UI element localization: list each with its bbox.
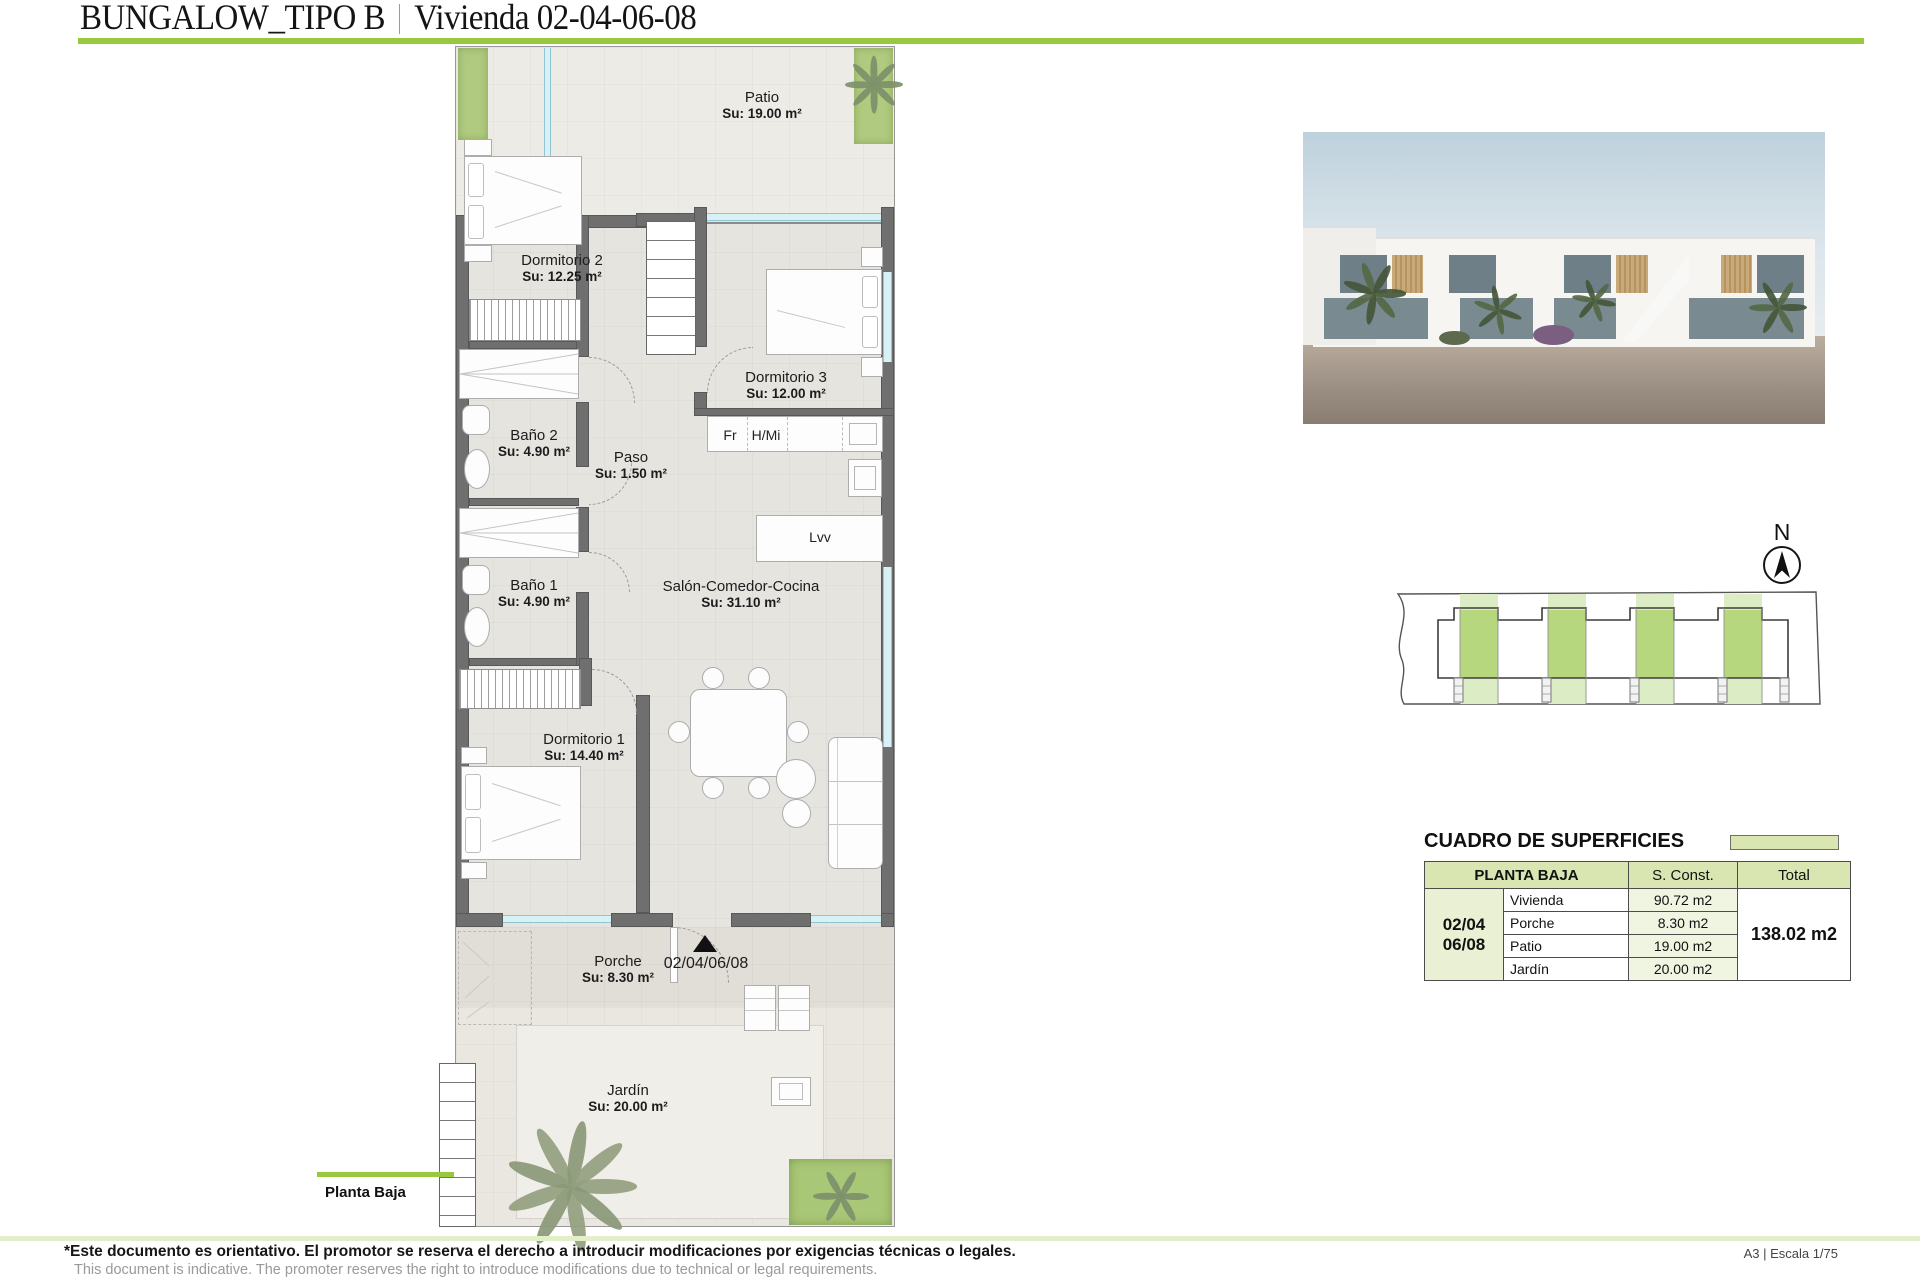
window-patio-dorm3 xyxy=(696,213,881,221)
sunbed xyxy=(778,985,810,1031)
building-render-photo xyxy=(1303,132,1825,424)
floor-label-accent xyxy=(317,1172,454,1177)
side-table xyxy=(782,799,811,828)
row-value: 90.72 m2 xyxy=(1629,889,1738,912)
kitchen-label-fridge: Fr xyxy=(723,427,736,443)
disclaimer-english: This document is indicative. The promote… xyxy=(74,1262,877,1278)
wall-segment xyxy=(469,658,579,666)
sink-bano1 xyxy=(464,607,490,647)
exterior-stairs xyxy=(439,1063,476,1227)
surfaces-accent-bar xyxy=(1730,835,1839,850)
sunbed xyxy=(744,985,776,1031)
window-sill xyxy=(696,222,881,224)
compass-icon xyxy=(1763,546,1801,584)
shower-bano1 xyxy=(459,508,579,558)
photo-palm-icon xyxy=(1475,284,1521,330)
floor-label: Planta Baja xyxy=(325,1184,406,1201)
wall-segment xyxy=(456,913,503,927)
photo-palm-icon xyxy=(1345,260,1403,318)
dining-table xyxy=(690,689,787,777)
surfaces-section-title: CUADRO DE SUPERFICIES xyxy=(1424,830,1684,853)
garden-palm-icon xyxy=(511,1127,631,1231)
kitchen-appliance xyxy=(848,459,882,497)
kitchen-label-oven-micro: H/Mi xyxy=(752,427,781,443)
garden-table xyxy=(771,1077,811,1106)
coffee-table xyxy=(776,759,816,799)
room-label-bano1: Baño 1 Su: 4.90 m² xyxy=(498,577,570,610)
nightstand xyxy=(861,247,883,267)
wall-segment xyxy=(576,402,589,467)
photo-bush xyxy=(1439,331,1470,346)
side-yard xyxy=(458,931,532,1025)
row-value: 19.00 m2 xyxy=(1629,935,1738,958)
chair xyxy=(748,667,770,689)
nightstand xyxy=(461,747,487,764)
small-palm-icon xyxy=(816,1169,866,1217)
patio-planter-left xyxy=(458,48,488,140)
unit-marker-label: 02/04/06/08 xyxy=(664,955,749,973)
wardrobe-dormitorio2 xyxy=(469,299,581,341)
bed-dormitorio1 xyxy=(461,766,581,860)
site-plan-diagram xyxy=(1388,586,1828,716)
wall-segment xyxy=(694,408,894,416)
wall-segment xyxy=(611,913,673,927)
row-value: 20.00 m2 xyxy=(1629,958,1738,981)
room-label-salon: Salón-Comedor-Cocina Su: 31.10 m² xyxy=(663,578,820,611)
room-label-dormitorio1: Dormitorio 1 Su: 14.40 m² xyxy=(543,731,625,764)
photo-wood-panel xyxy=(1721,255,1752,293)
entrance-marker-icon xyxy=(693,935,717,952)
nightstand xyxy=(464,245,492,262)
chair xyxy=(702,777,724,799)
room-label-dormitorio3: Dormitorio 3 Su: 12.00 m² xyxy=(745,369,827,402)
table-row: 02/04 06/08 Vivienda 90.72 m2 138.02 m2 xyxy=(1425,889,1851,912)
palm-tree-icon xyxy=(848,55,900,107)
toilet-bano1 xyxy=(462,565,490,595)
photo-wood-panel xyxy=(1616,255,1647,293)
disclaimer-spanish: *Este documento es orientativo. El promo… xyxy=(64,1243,1016,1261)
title-accent-rule xyxy=(78,38,1864,44)
window-salon-east xyxy=(883,567,892,747)
photo-palm-icon xyxy=(1574,278,1614,318)
room-label-bano2: Baño 2 Su: 4.90 m² xyxy=(498,427,570,460)
bed-dormitorio3 xyxy=(766,269,882,355)
room-label-jardin: Jardín Su: 20.00 m² xyxy=(588,1082,668,1115)
row-label: Jardín xyxy=(1504,958,1629,981)
footer-accent-band xyxy=(0,1236,1920,1241)
title-vivienda: Vivienda 02-04-06-08 xyxy=(414,0,696,38)
nightstand xyxy=(461,862,487,879)
unit-numbers-cell: 02/04 06/08 xyxy=(1425,889,1504,981)
wall-segment xyxy=(636,695,650,913)
window-dorm3-east xyxy=(883,272,892,362)
table-header-planta-baja: PLANTA BAJA xyxy=(1425,862,1629,889)
row-label: Porche xyxy=(1504,912,1629,935)
plan-sheet: BUNGALOW_TIPO B Vivienda 02-04-06-08 xyxy=(0,0,1920,1280)
photo-ground xyxy=(1303,336,1825,424)
row-label: Patio xyxy=(1504,935,1629,958)
wall-segment xyxy=(576,592,589,666)
north-arrow: N xyxy=(1762,520,1802,584)
surfaces-table: PLANTA BAJA S. Const. Total 02/04 06/08 … xyxy=(1424,861,1851,981)
title-type: BUNGALOW_TIPO B xyxy=(80,0,385,38)
chair xyxy=(668,721,690,743)
table-header-total: Total xyxy=(1738,862,1851,889)
wall-segment xyxy=(731,913,811,927)
sofa xyxy=(828,737,883,869)
shower-bano2 xyxy=(459,349,579,399)
north-label: N xyxy=(1762,520,1802,544)
room-label-porche: Porche Su: 8.30 m² xyxy=(582,953,654,986)
nightstand xyxy=(861,357,883,377)
window-salon-porch xyxy=(811,915,881,923)
wall-segment xyxy=(881,913,894,927)
kitchen-label-dishwasher: Lvv xyxy=(809,529,831,545)
wall-segment xyxy=(469,498,579,506)
toilet-bano2 xyxy=(462,405,490,435)
table-header-sconst: S. Const. xyxy=(1629,862,1738,889)
row-label: Vivienda xyxy=(1504,889,1629,912)
window-dorm1-porch xyxy=(503,915,611,923)
page-title: BUNGALOW_TIPO B Vivienda 02-04-06-08 xyxy=(80,0,696,37)
table-header-row: PLANTA BAJA S. Const. Total xyxy=(1425,862,1851,889)
stairs-to-upper-floor xyxy=(646,221,696,355)
bed-dormitorio2 xyxy=(464,156,582,245)
chair xyxy=(748,777,770,799)
title-divider xyxy=(399,4,400,34)
room-label-paso: Paso Su: 1.50 m² xyxy=(595,449,667,482)
row-value: 8.30 m2 xyxy=(1629,912,1738,935)
sheet-scale-info: A3 | Escala 1/75 xyxy=(1744,1246,1838,1261)
wardrobe-dormitorio1 xyxy=(459,669,581,709)
room-label-dormitorio2: Dormitorio 2 Su: 12.25 m² xyxy=(521,252,603,285)
room-label-patio: Patio Su: 19.00 m² xyxy=(722,89,802,122)
nightstand xyxy=(464,139,492,156)
total-cell: 138.02 m2 xyxy=(1738,889,1851,981)
photo-palm-icon xyxy=(1752,278,1804,330)
chair xyxy=(702,667,724,689)
floor-plan: Fr H/Mi Lvv xyxy=(455,46,895,1227)
chair xyxy=(787,721,809,743)
sink-bano2 xyxy=(464,449,490,489)
wall-segment xyxy=(469,341,579,349)
